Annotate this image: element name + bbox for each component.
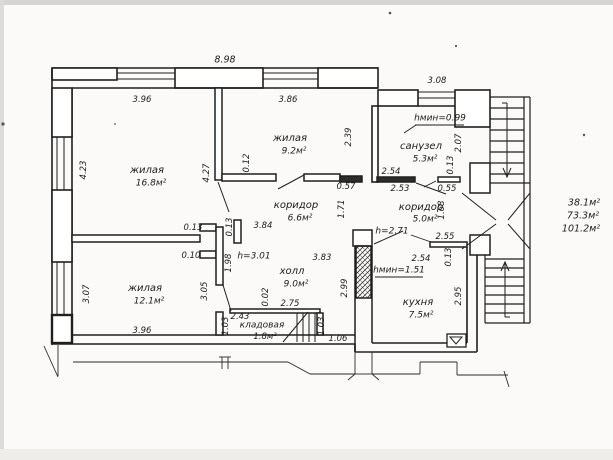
dim-171: 1.71 (338, 200, 347, 219)
dim-239: 2.39 (345, 128, 354, 147)
dim-013-kitchen: 0.13 (445, 248, 454, 267)
dim-013-bathroom: 0.13 (447, 156, 456, 175)
dim-055: 0.55 (438, 185, 457, 194)
dim-overall-width: 8.98 (214, 55, 235, 65)
dim-198: 1.98 (225, 254, 234, 273)
floor-plan-drawing (0, 0, 613, 460)
summary-living-area: 38.1м² (568, 198, 600, 208)
storage-stair (283, 312, 315, 342)
room-hall-name: холл (280, 267, 305, 277)
dim-275: 2.75 (281, 300, 300, 309)
floor-plan-page: 8.98 3.96 3.86 3.08 4.23 4.27 0.12 2.39 … (0, 0, 613, 460)
dim-255: 2.55 (436, 233, 455, 242)
room-hall-area: 9.0м² (284, 281, 309, 290)
summary-overall-area: 101.2м² (562, 224, 600, 234)
dim-207: 2.07 (455, 134, 464, 153)
dim-mid-upper: 4.27 (203, 164, 212, 183)
room-storage-name: кладовая (240, 322, 285, 331)
vent-icon (447, 334, 466, 347)
room-living-121-area: 12.1м² (134, 298, 164, 307)
room-corridor-50-area: 5.0м² (413, 216, 438, 225)
dim-left-upper: 4.23 (80, 161, 89, 180)
room-kitchen-area: 7.5м² (409, 312, 434, 321)
room-corridor-50-name: коридор (399, 203, 443, 213)
room-bathroom-name: санузел (400, 142, 442, 152)
room-living-121-name: жилая (128, 284, 162, 294)
room-living-168-name: жилая (130, 166, 164, 176)
dim-002: 0.02 (262, 288, 271, 307)
height-note-min-151: hмин=1.51 (373, 267, 425, 276)
summary-usable-area: 73.3м² (567, 211, 599, 221)
room-living-92-name: жилая (273, 134, 307, 144)
dim-305: 3.05 (201, 282, 210, 301)
door-swings (218, 175, 446, 311)
dim-295: 2.95 (455, 287, 464, 306)
height-note-301: h=3.01 (237, 253, 270, 262)
dim-254-kitchen: 2.54 (412, 255, 431, 264)
dim-013-junction-h: 0.13 (184, 224, 203, 233)
dim-384: 3.84 (254, 222, 273, 231)
room-living-168-area: 16.8м² (136, 180, 166, 189)
dim-012: 0.12 (243, 154, 252, 173)
room-bathroom-area: 5.3м² (413, 156, 438, 165)
room-corridor-66-name: коридор (274, 201, 318, 211)
dim-103-left: 1.03 (222, 317, 231, 336)
height-note-271: h=2.71 (375, 228, 408, 237)
height-note-min-099: hмин=0.99 (414, 115, 466, 124)
dim-253: 2.53 (391, 185, 410, 194)
dim-annex-top: 3.08 (428, 77, 447, 86)
dim-top-left: 3.96 (133, 96, 152, 105)
dim-057: 0.57 (337, 183, 356, 192)
room-living-92-area: 9.2м² (282, 148, 307, 157)
staircase (462, 97, 530, 323)
dim-010: 0.10 (182, 252, 201, 261)
dim-bottom-width: 3.96 (133, 327, 152, 336)
room-corridor-66-area: 6.6м² (288, 215, 313, 224)
dim-307: 3.07 (83, 285, 92, 304)
dim-top-mid: 3.86 (279, 96, 298, 105)
dim-254-bathroom: 2.54 (382, 168, 401, 177)
dim-013-junction-v: 0.13 (226, 218, 235, 237)
room-kitchen-name: кухня (403, 298, 433, 308)
dim-103-right: 1.03 (318, 317, 327, 336)
dim-299: 2.99 (341, 279, 350, 298)
room-storage-area: 1.8м² (253, 333, 276, 342)
dim-106: 1.06 (329, 335, 348, 344)
dim-383: 3.83 (313, 254, 332, 263)
